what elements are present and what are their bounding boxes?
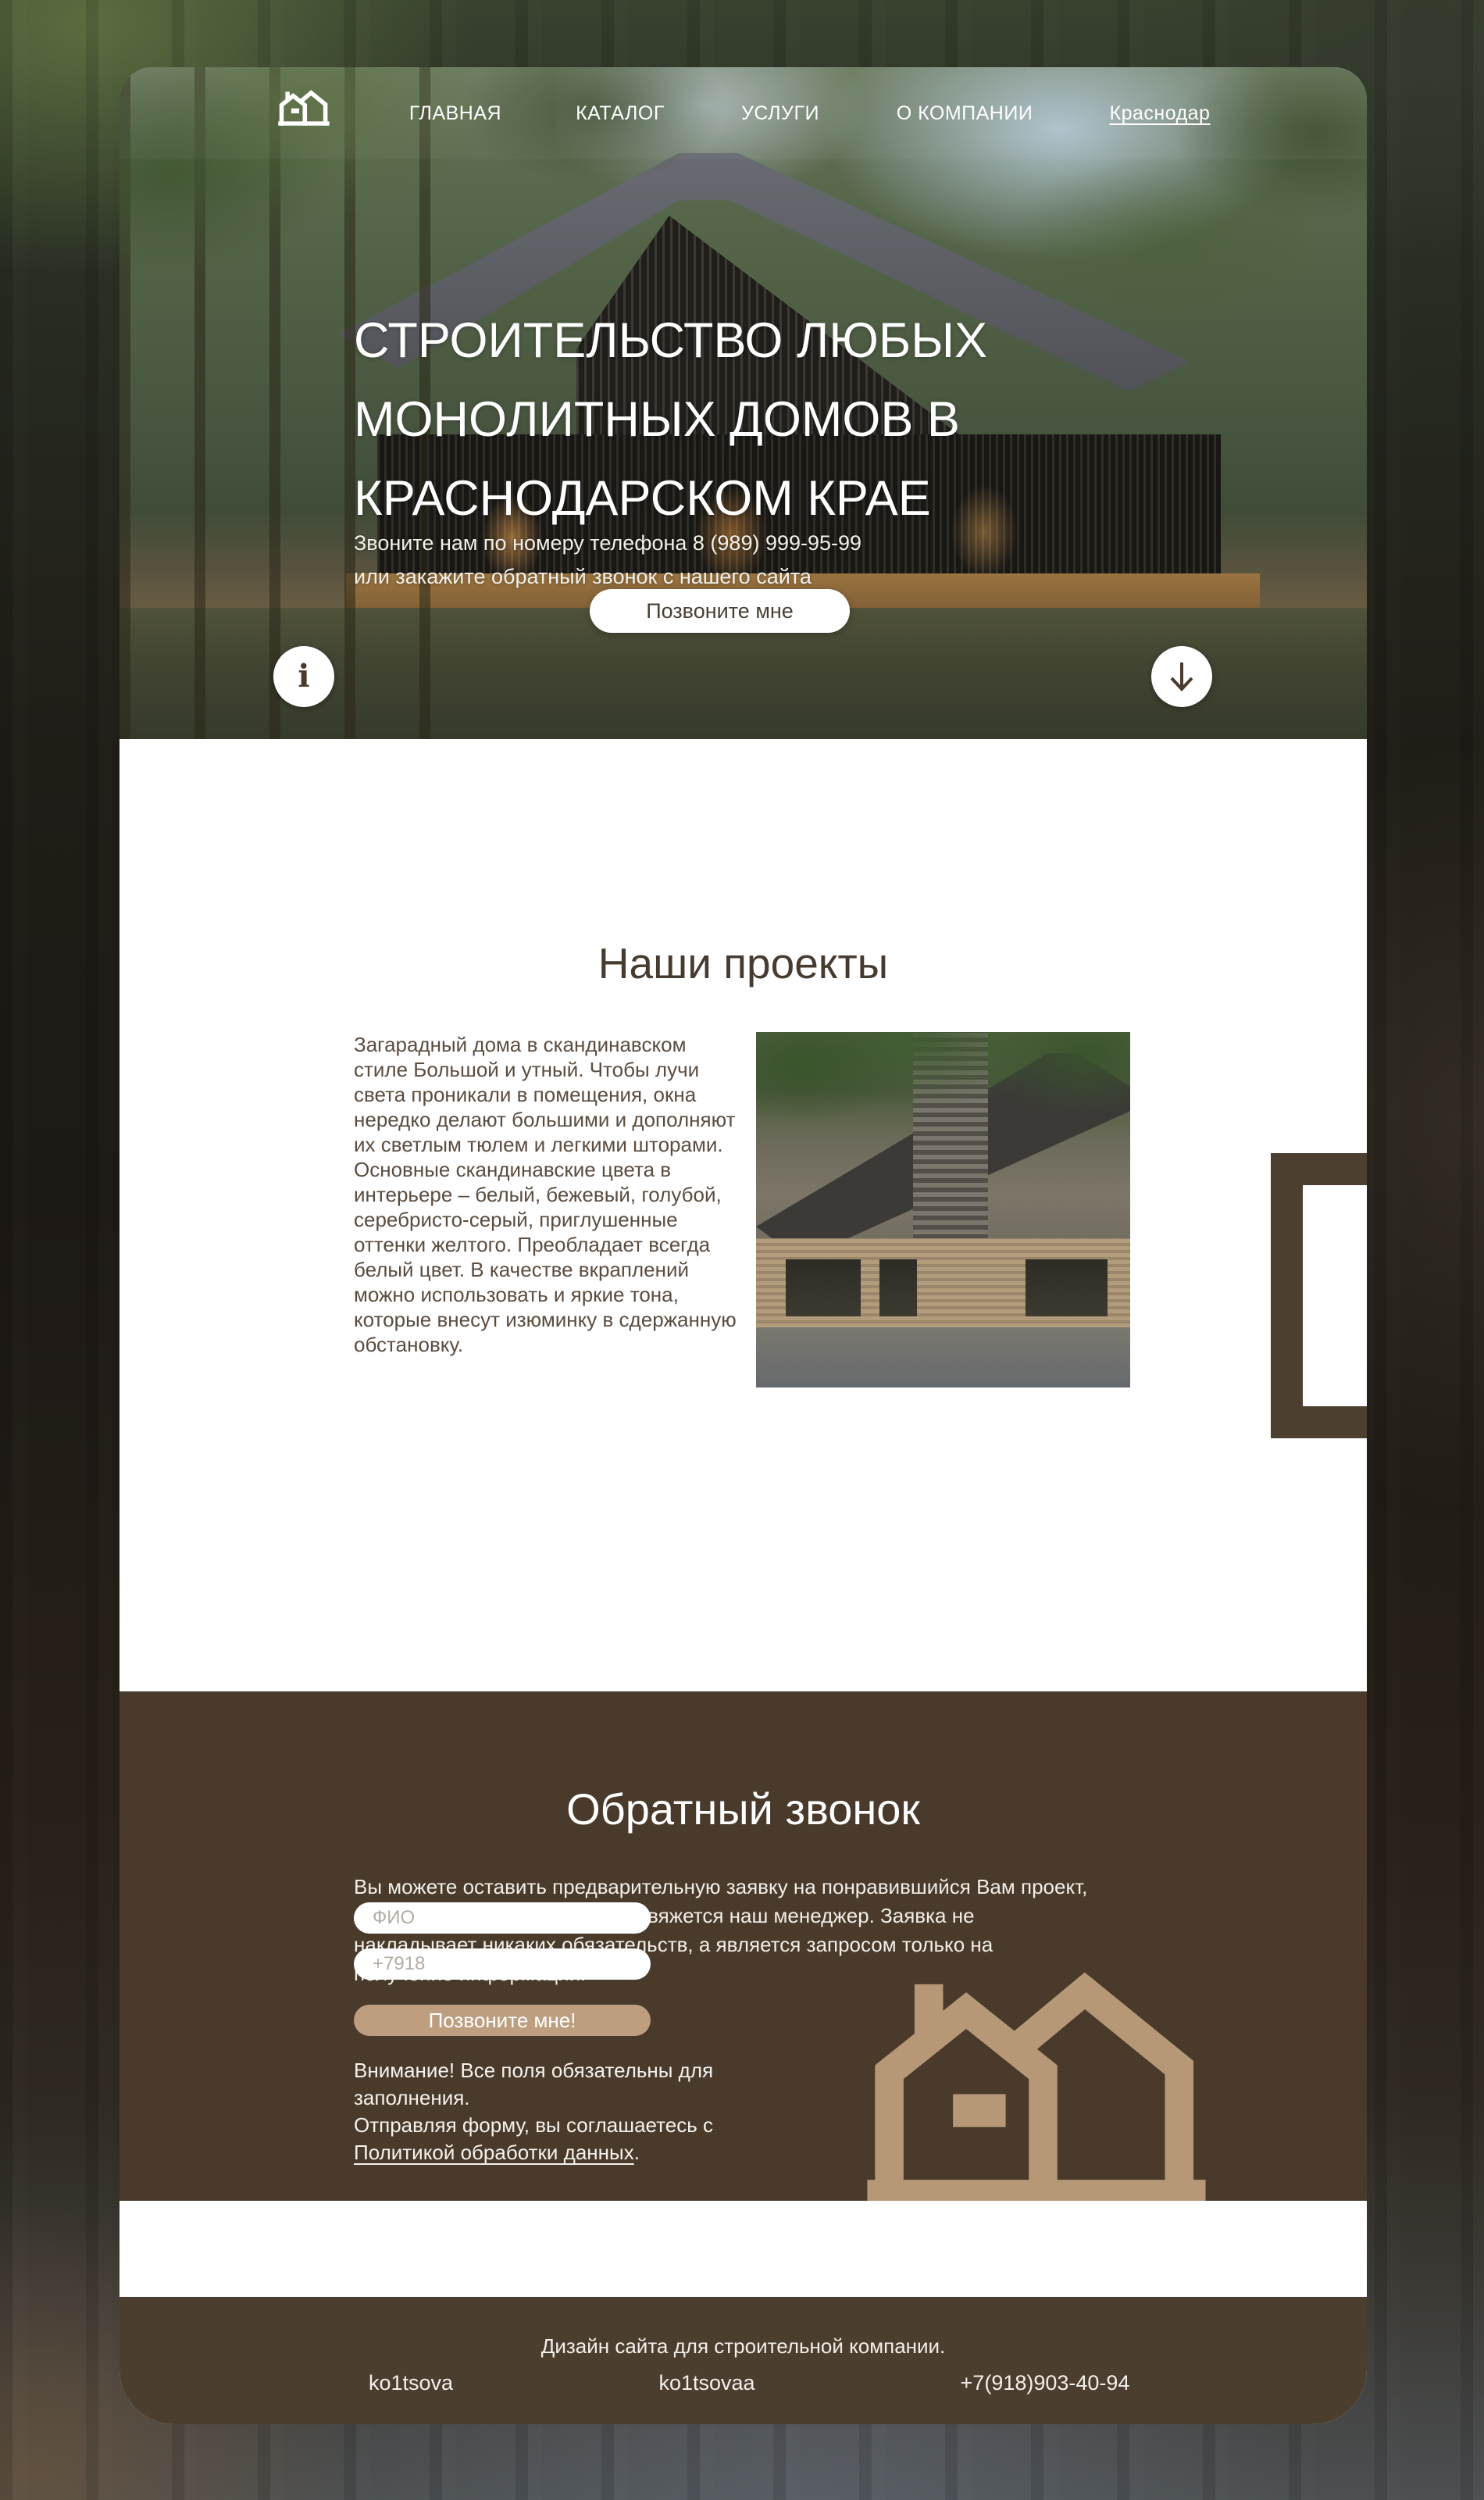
footer-caption: Дизайн сайта для строительной компании. bbox=[120, 2334, 1367, 2359]
name-input[interactable] bbox=[354, 1902, 651, 1934]
nav-item-main[interactable]: ГЛАВНАЯ bbox=[409, 102, 501, 125]
project-photo-pavement bbox=[756, 1327, 1130, 1387]
hero-title-line: МОНОЛИТНЫХ ДОМОВ В bbox=[354, 380, 987, 459]
top-navigation: ГЛАВНАЯ КАТАЛОГ УСЛУГИ О КОМПАНИИ Красно… bbox=[120, 67, 1367, 159]
project-photo-window bbox=[879, 1259, 917, 1316]
hero-section: ГЛАВНАЯ КАТАЛОГ УСЛУГИ О КОМПАНИИ Красно… bbox=[120, 67, 1367, 739]
projects-title: Наши проекты bbox=[120, 938, 1367, 988]
call-me-button[interactable]: Позвоните мне bbox=[590, 589, 850, 633]
city-selector-link[interactable]: Краснодар bbox=[1110, 102, 1211, 125]
form-note-suffix: . bbox=[634, 2141, 640, 2164]
frame-decoration bbox=[1271, 1153, 1367, 1438]
submit-button[interactable]: Позвоните мне! bbox=[354, 2005, 651, 2036]
project-photo-window bbox=[786, 1259, 861, 1316]
nav-item-services[interactable]: УСЛУГИ bbox=[741, 102, 819, 125]
company-logo-icon[interactable] bbox=[277, 89, 330, 130]
arrow-down-icon bbox=[1168, 661, 1195, 692]
project-photo-trees bbox=[756, 1032, 1130, 1174]
footer-author1: ko1tsova bbox=[369, 2371, 453, 2395]
callback-title: Обратный звонок bbox=[120, 1784, 1367, 1834]
form-note-consent: Отправляя форму, вы соглашаетесь с Полит… bbox=[354, 2112, 811, 2166]
footer-author2: ko1tsovaa bbox=[658, 2371, 754, 2395]
hero-title: СТРОИТЕЛЬСТВО ЛЮБЫХ МОНОЛИТНЫХ ДОМОВ В К… bbox=[354, 302, 987, 538]
form-note-prefix: Отправляя форму, вы соглашаетесь с bbox=[354, 2113, 713, 2137]
footer-phone: +7(918)903-40-94 bbox=[961, 2371, 1130, 2395]
footer: Дизайн сайта для строительной компании. … bbox=[120, 2297, 1367, 2424]
info-icon: i bbox=[298, 661, 309, 692]
content-card: ГЛАВНАЯ КАТАЛОГ УСЛУГИ О КОМПАНИИ Красно… bbox=[120, 67, 1367, 2424]
projects-section: Наши проекты Загарадный дома в скандинав… bbox=[120, 739, 1367, 1691]
hero-subtitle-line: Звоните нам по номеру телефона 8 (989) 9… bbox=[354, 527, 862, 560]
hero-subtitle: Звоните нам по номеру телефона 8 (989) 9… bbox=[354, 527, 862, 594]
nav-item-catalog[interactable]: КАТАЛОГ bbox=[576, 102, 665, 125]
project-photo-window bbox=[1026, 1259, 1108, 1316]
privacy-policy-link[interactable]: Политикой обработки данных bbox=[354, 2141, 634, 2164]
form-note: Внимание! Все поля обязательны для запол… bbox=[354, 2057, 811, 2166]
project-photo bbox=[756, 1032, 1130, 1387]
divider-band bbox=[120, 2201, 1367, 2297]
nav-item-about[interactable]: О КОМПАНИИ bbox=[897, 102, 1033, 125]
form-note-line: Внимание! Все поля обязательны для запол… bbox=[354, 2057, 811, 2112]
scroll-down-button[interactable] bbox=[1151, 646, 1212, 707]
info-button[interactable]: i bbox=[273, 646, 334, 707]
big-logo-icon bbox=[861, 1966, 1212, 2201]
landing-page: ГЛАВНАЯ КАТАЛОГ УСЛУГИ О КОМПАНИИ Красно… bbox=[0, 0, 1484, 2500]
hero-title-line: СТРОИТЕЛЬСТВО ЛЮБЫХ bbox=[354, 302, 987, 380]
project-description: Загарадный дома в скандинавском стиле Бо… bbox=[354, 1032, 744, 1357]
phone-input[interactable] bbox=[354, 1948, 651, 1980]
